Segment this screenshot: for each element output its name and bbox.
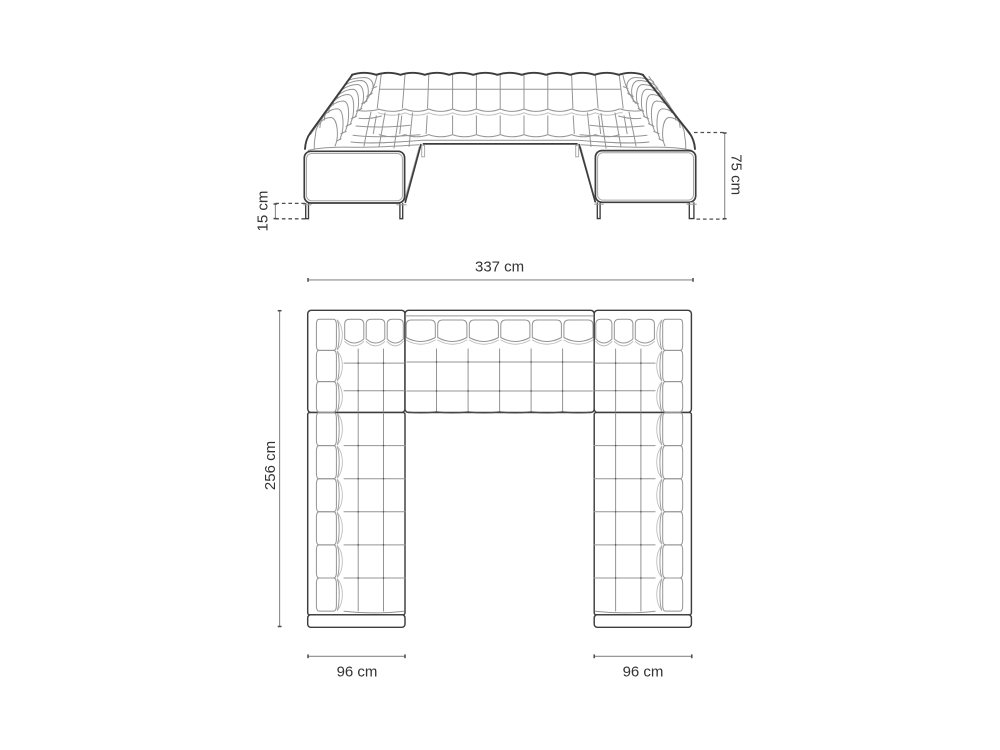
svg-text:15 cm: 15 cm bbox=[255, 191, 272, 232]
svg-text:337 cm: 337 cm bbox=[475, 259, 524, 276]
svg-text:96 cm: 96 cm bbox=[337, 664, 378, 681]
svg-text:75 cm: 75 cm bbox=[728, 154, 745, 195]
svg-text:96 cm: 96 cm bbox=[623, 664, 664, 681]
svg-text:256 cm: 256 cm bbox=[262, 441, 279, 490]
